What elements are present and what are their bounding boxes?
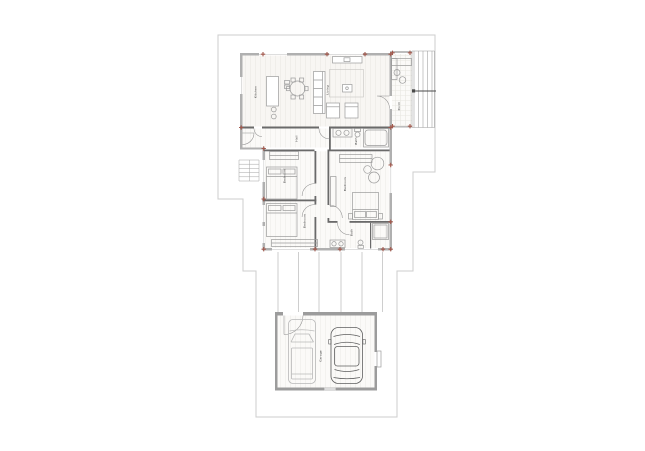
porch-steps: [412, 51, 435, 128]
stairs-west: [239, 160, 259, 181]
room-label-bedroom-b: Bedroom: [303, 214, 307, 228]
entry-arrow: [412, 89, 436, 92]
armchair: [327, 103, 340, 118]
room-label-kitchen: Kitchen: [254, 86, 258, 98]
porch-floor: [392, 54, 412, 128]
room-label-porch: Porch: [397, 102, 401, 111]
floor-plan-drawing: Kitchen Living Porch Hall Bath Bedroom B…: [0, 0, 645, 451]
room-label-living: Living: [326, 85, 330, 95]
driveway-lines: [278, 252, 383, 312]
garage-floor: [278, 316, 375, 389]
armchair: [345, 103, 358, 118]
sofa: [314, 72, 326, 114]
kitchen-island: [267, 77, 279, 107]
room-label-bedroom-a: Bedroom: [283, 169, 287, 183]
room-label-garage: Garage: [319, 350, 323, 362]
room-label-bath-top: Bath: [354, 137, 358, 144]
hall-floor: [243, 129, 390, 148]
room-label-master: Bedroom: [343, 177, 347, 191]
floor-plan-canvas: Kitchen Living Porch Hall Bath Bedroom B…: [0, 0, 645, 451]
room-label-hall: Hall: [295, 135, 299, 141]
garage-window-frame: [377, 351, 381, 367]
room-label-bath-lower: Bath: [350, 229, 354, 236]
coffee-table: [343, 85, 353, 93]
